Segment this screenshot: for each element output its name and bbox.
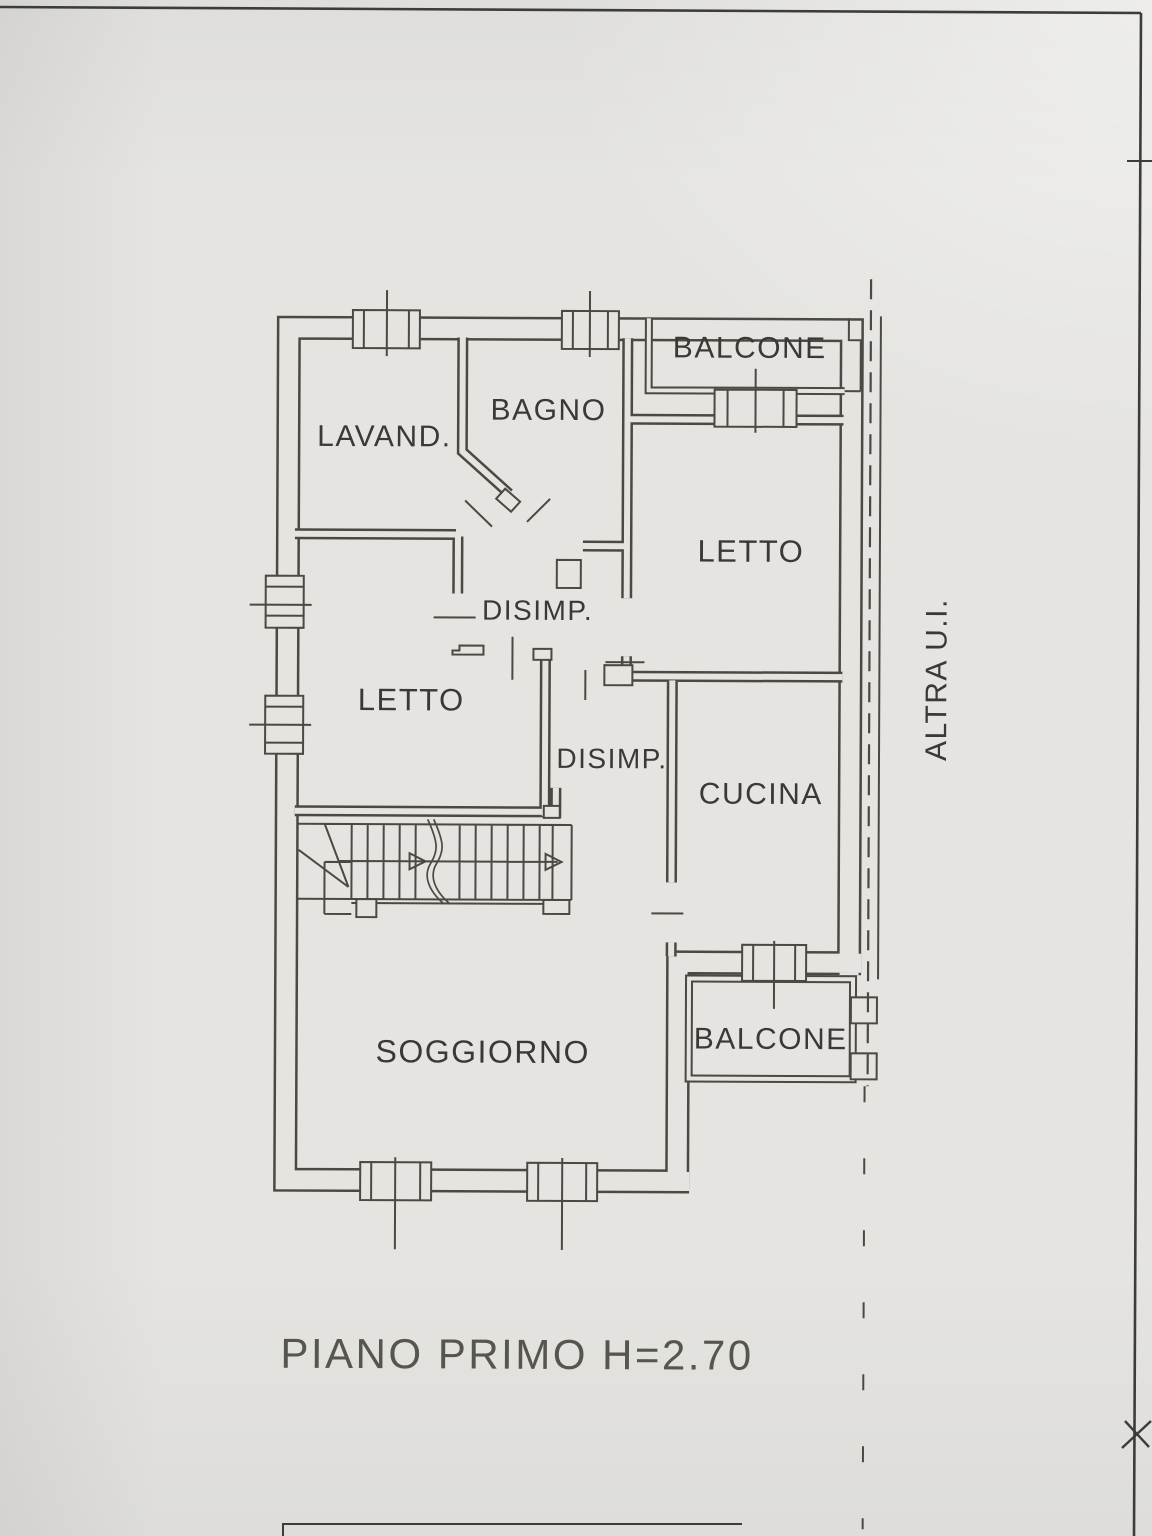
room-label-letto-left: LETTO bbox=[358, 682, 465, 717]
boundary-dashed-line-lower bbox=[863, 1086, 865, 1529]
room-label-balcone-top: BALCONE bbox=[673, 331, 827, 365]
room-label-cucina: CUCINA bbox=[699, 778, 823, 812]
plan-caption: PIANO PRIMO H=2.70 bbox=[280, 1330, 754, 1379]
scanned-floorplan-page: BALCONE LAVAND. BAGNO LETTO DISIMP. LETT… bbox=[0, 0, 1152, 1536]
room-label-balcone-bottom: BALCONE bbox=[694, 1023, 848, 1057]
room-label-soggiorno: SOGGIORNO bbox=[375, 1033, 590, 1070]
room-label-disimpegno-upper: DISIMP. bbox=[482, 595, 593, 626]
next-sheet-corner-lines bbox=[282, 1524, 742, 1536]
room-label-letto-right: LETTO bbox=[697, 534, 804, 569]
boundary-line bbox=[863, 279, 871, 1529]
room-label-disimpegno-lower: DISIMP. bbox=[556, 743, 667, 774]
floorplan-group: BALCONE LAVAND. BAGNO LETTO DISIMP. LETT… bbox=[246, 277, 955, 1530]
room-label-bagno: BAGNO bbox=[491, 394, 607, 428]
room-label-lavanderia: LAVAND. bbox=[317, 420, 452, 454]
page-frame-top-line bbox=[0, 7, 1141, 13]
boundary-dashed-line bbox=[868, 279, 872, 1086]
floorplan-drawing: BALCONE LAVAND. BAGNO LETTO DISIMP. LETT… bbox=[0, 0, 1152, 1536]
staircase bbox=[297, 819, 571, 915]
page-frame-cross-mark bbox=[1122, 1421, 1151, 1448]
page-frame-right-line bbox=[1134, 13, 1141, 1536]
adjacent-unit-label: ALTRA U.I. bbox=[920, 598, 954, 761]
